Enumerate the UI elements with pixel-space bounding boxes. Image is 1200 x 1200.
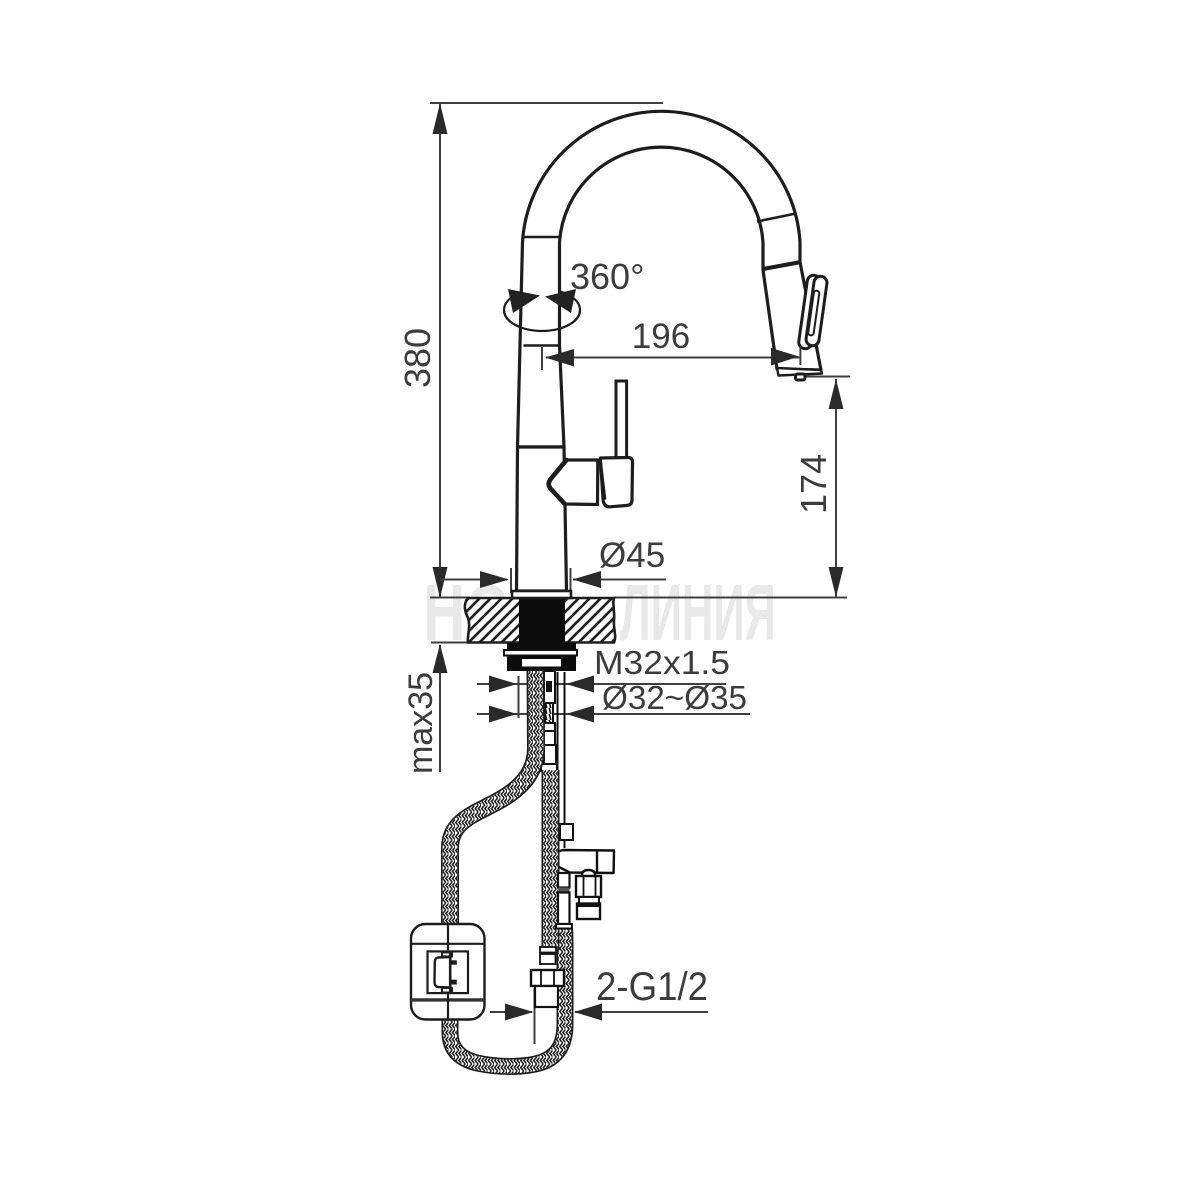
svg-text:Ø45: Ø45 xyxy=(599,536,665,575)
svg-text:max35: max35 xyxy=(402,672,440,774)
svg-text:380: 380 xyxy=(397,328,438,388)
svg-text:196: 196 xyxy=(632,317,690,356)
svg-text:174: 174 xyxy=(793,454,834,514)
svg-text:2-G1/2: 2-G1/2 xyxy=(596,965,708,1009)
svg-text:Ø32~Ø35: Ø32~Ø35 xyxy=(602,679,747,716)
svg-text:360°: 360° xyxy=(570,256,644,297)
svg-text:M32x1.5: M32x1.5 xyxy=(594,644,730,681)
